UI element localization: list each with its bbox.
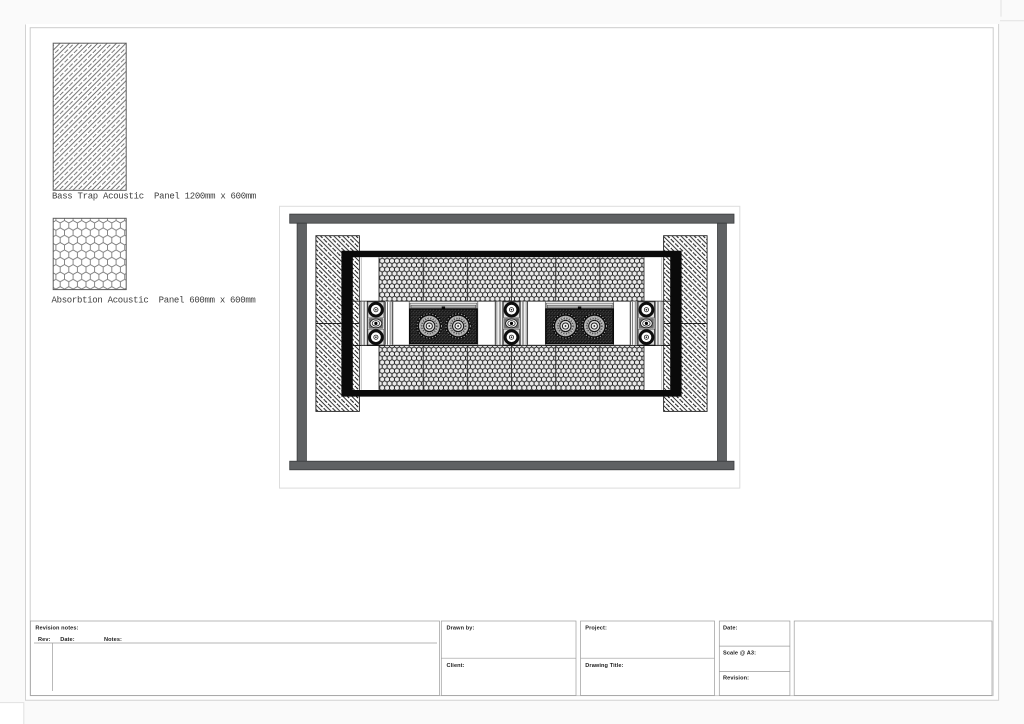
svg-text:Project:: Project: xyxy=(585,626,607,632)
svg-text:Date:: Date: xyxy=(60,637,75,643)
svg-text:Bass Trap Acoustic Panel 1200: Bass Trap Acoustic Panel 1200mm x 600mm xyxy=(52,192,256,202)
svg-text:Revision notes:: Revision notes: xyxy=(35,626,78,632)
svg-text:Date:: Date: xyxy=(723,626,738,632)
svg-text:Drawn by:: Drawn by: xyxy=(447,626,475,632)
svg-text:Rev:: Rev: xyxy=(38,637,51,643)
svg-text:Absorbtion Acoustic Panel 600: Absorbtion Acoustic Panel 600mm x 600mm xyxy=(52,296,256,306)
svg-text:Notes:: Notes: xyxy=(104,637,122,643)
svg-text:Client:: Client: xyxy=(447,663,465,669)
svg-text:Drawing Title:: Drawing Title: xyxy=(585,663,623,669)
svg-text:Scale @ A3:: Scale @ A3: xyxy=(723,650,756,656)
svg-text:Revision:: Revision: xyxy=(723,676,749,682)
